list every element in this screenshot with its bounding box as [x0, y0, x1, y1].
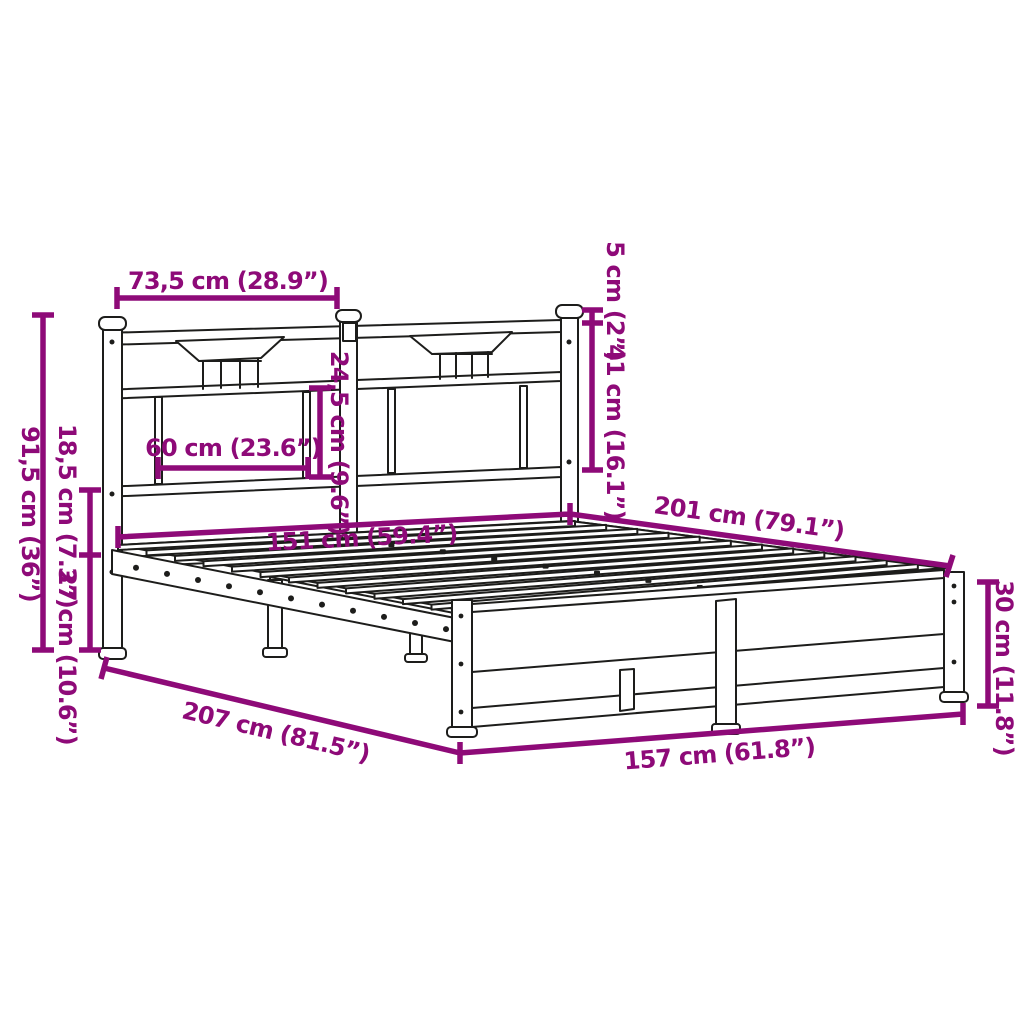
dim-line-post-cap-height — [582, 310, 603, 323]
rail-hole — [195, 577, 201, 583]
footboard-connector — [620, 669, 634, 711]
footboard-lower-rail — [472, 668, 944, 727]
headboard-cap-center — [336, 310, 361, 322]
headboard-post-right — [561, 316, 578, 528]
support-foot-mid — [263, 648, 287, 657]
rail-hole — [133, 565, 139, 571]
rail-hole — [226, 583, 232, 589]
headboard-panel-bar-right-outer — [520, 386, 527, 468]
slat-clip — [491, 556, 497, 561]
rivet — [110, 492, 115, 497]
rail-hole — [319, 602, 325, 608]
dim-label-headboard-panel-width: 60 cm (23.6”) — [145, 434, 321, 462]
rail-hole — [350, 608, 356, 614]
rivet — [952, 660, 957, 665]
dim-label-headboard-panel-height: 24,5 cm (9.6”) — [325, 351, 353, 535]
rivet — [952, 584, 957, 589]
footboard-post-right — [944, 572, 964, 698]
slat-clip — [594, 571, 600, 576]
rail-hole — [257, 589, 263, 595]
headboard-cap-right — [556, 305, 583, 318]
dim-line-headboard-upper-height — [582, 323, 603, 470]
rivet — [110, 340, 115, 345]
dim-label-headboard-upper-height: 41 cm (16.1”) — [601, 344, 629, 520]
dim-label-footboard-height: 30 cm (11.8”) — [990, 580, 1018, 756]
bed-frame-dimension-diagram: 73,5 cm (28.9”) 5 cm (2”) 41 cm (16.1”) … — [0, 0, 1024, 1024]
diagram-canvas: 73,5 cm (28.9”) 5 cm (2”) 41 cm (16.1”) … — [0, 0, 1024, 1024]
dim-label-headboard-total-height: 91,5 cm (36”) — [16, 426, 44, 602]
slat-clip — [645, 578, 651, 583]
slat-clip — [440, 549, 446, 554]
rivet — [567, 460, 572, 465]
rivet — [459, 710, 464, 715]
slat-clip — [543, 564, 549, 569]
rivet — [952, 600, 957, 605]
rail-hole — [381, 614, 387, 620]
rail-hole — [443, 626, 449, 632]
rail-hole — [412, 620, 418, 626]
support-foot-front — [405, 654, 427, 662]
rivet — [567, 340, 572, 345]
footboard-center-bar — [716, 599, 736, 730]
dim-line-total-length — [101, 657, 460, 764]
headboard-panel-bar-right-inner — [388, 389, 395, 473]
headboard-cap-left — [99, 317, 126, 330]
footboard-foot-left — [447, 727, 477, 737]
headboard-bracket-left — [176, 337, 284, 361]
headboard-center-clip — [343, 323, 356, 341]
headboard-bracket-right — [410, 332, 512, 354]
rail-hole — [164, 571, 170, 577]
rivet — [459, 662, 464, 667]
footboard-foot-right — [940, 692, 968, 702]
headboard-post-left — [103, 328, 122, 652]
headboard-foot-left — [99, 648, 126, 659]
rivet — [459, 614, 464, 619]
dim-label-ground-clearance: 27 cm (10.6”) — [53, 569, 81, 745]
dim-label-post-cap-height: 5 cm (2”) — [601, 241, 629, 361]
dim-label-headboard-section-width: 73,5 cm (28.9”) — [128, 267, 328, 295]
rail-hole — [288, 595, 294, 601]
dim-line-under-rail-and-clearance — [79, 490, 101, 650]
